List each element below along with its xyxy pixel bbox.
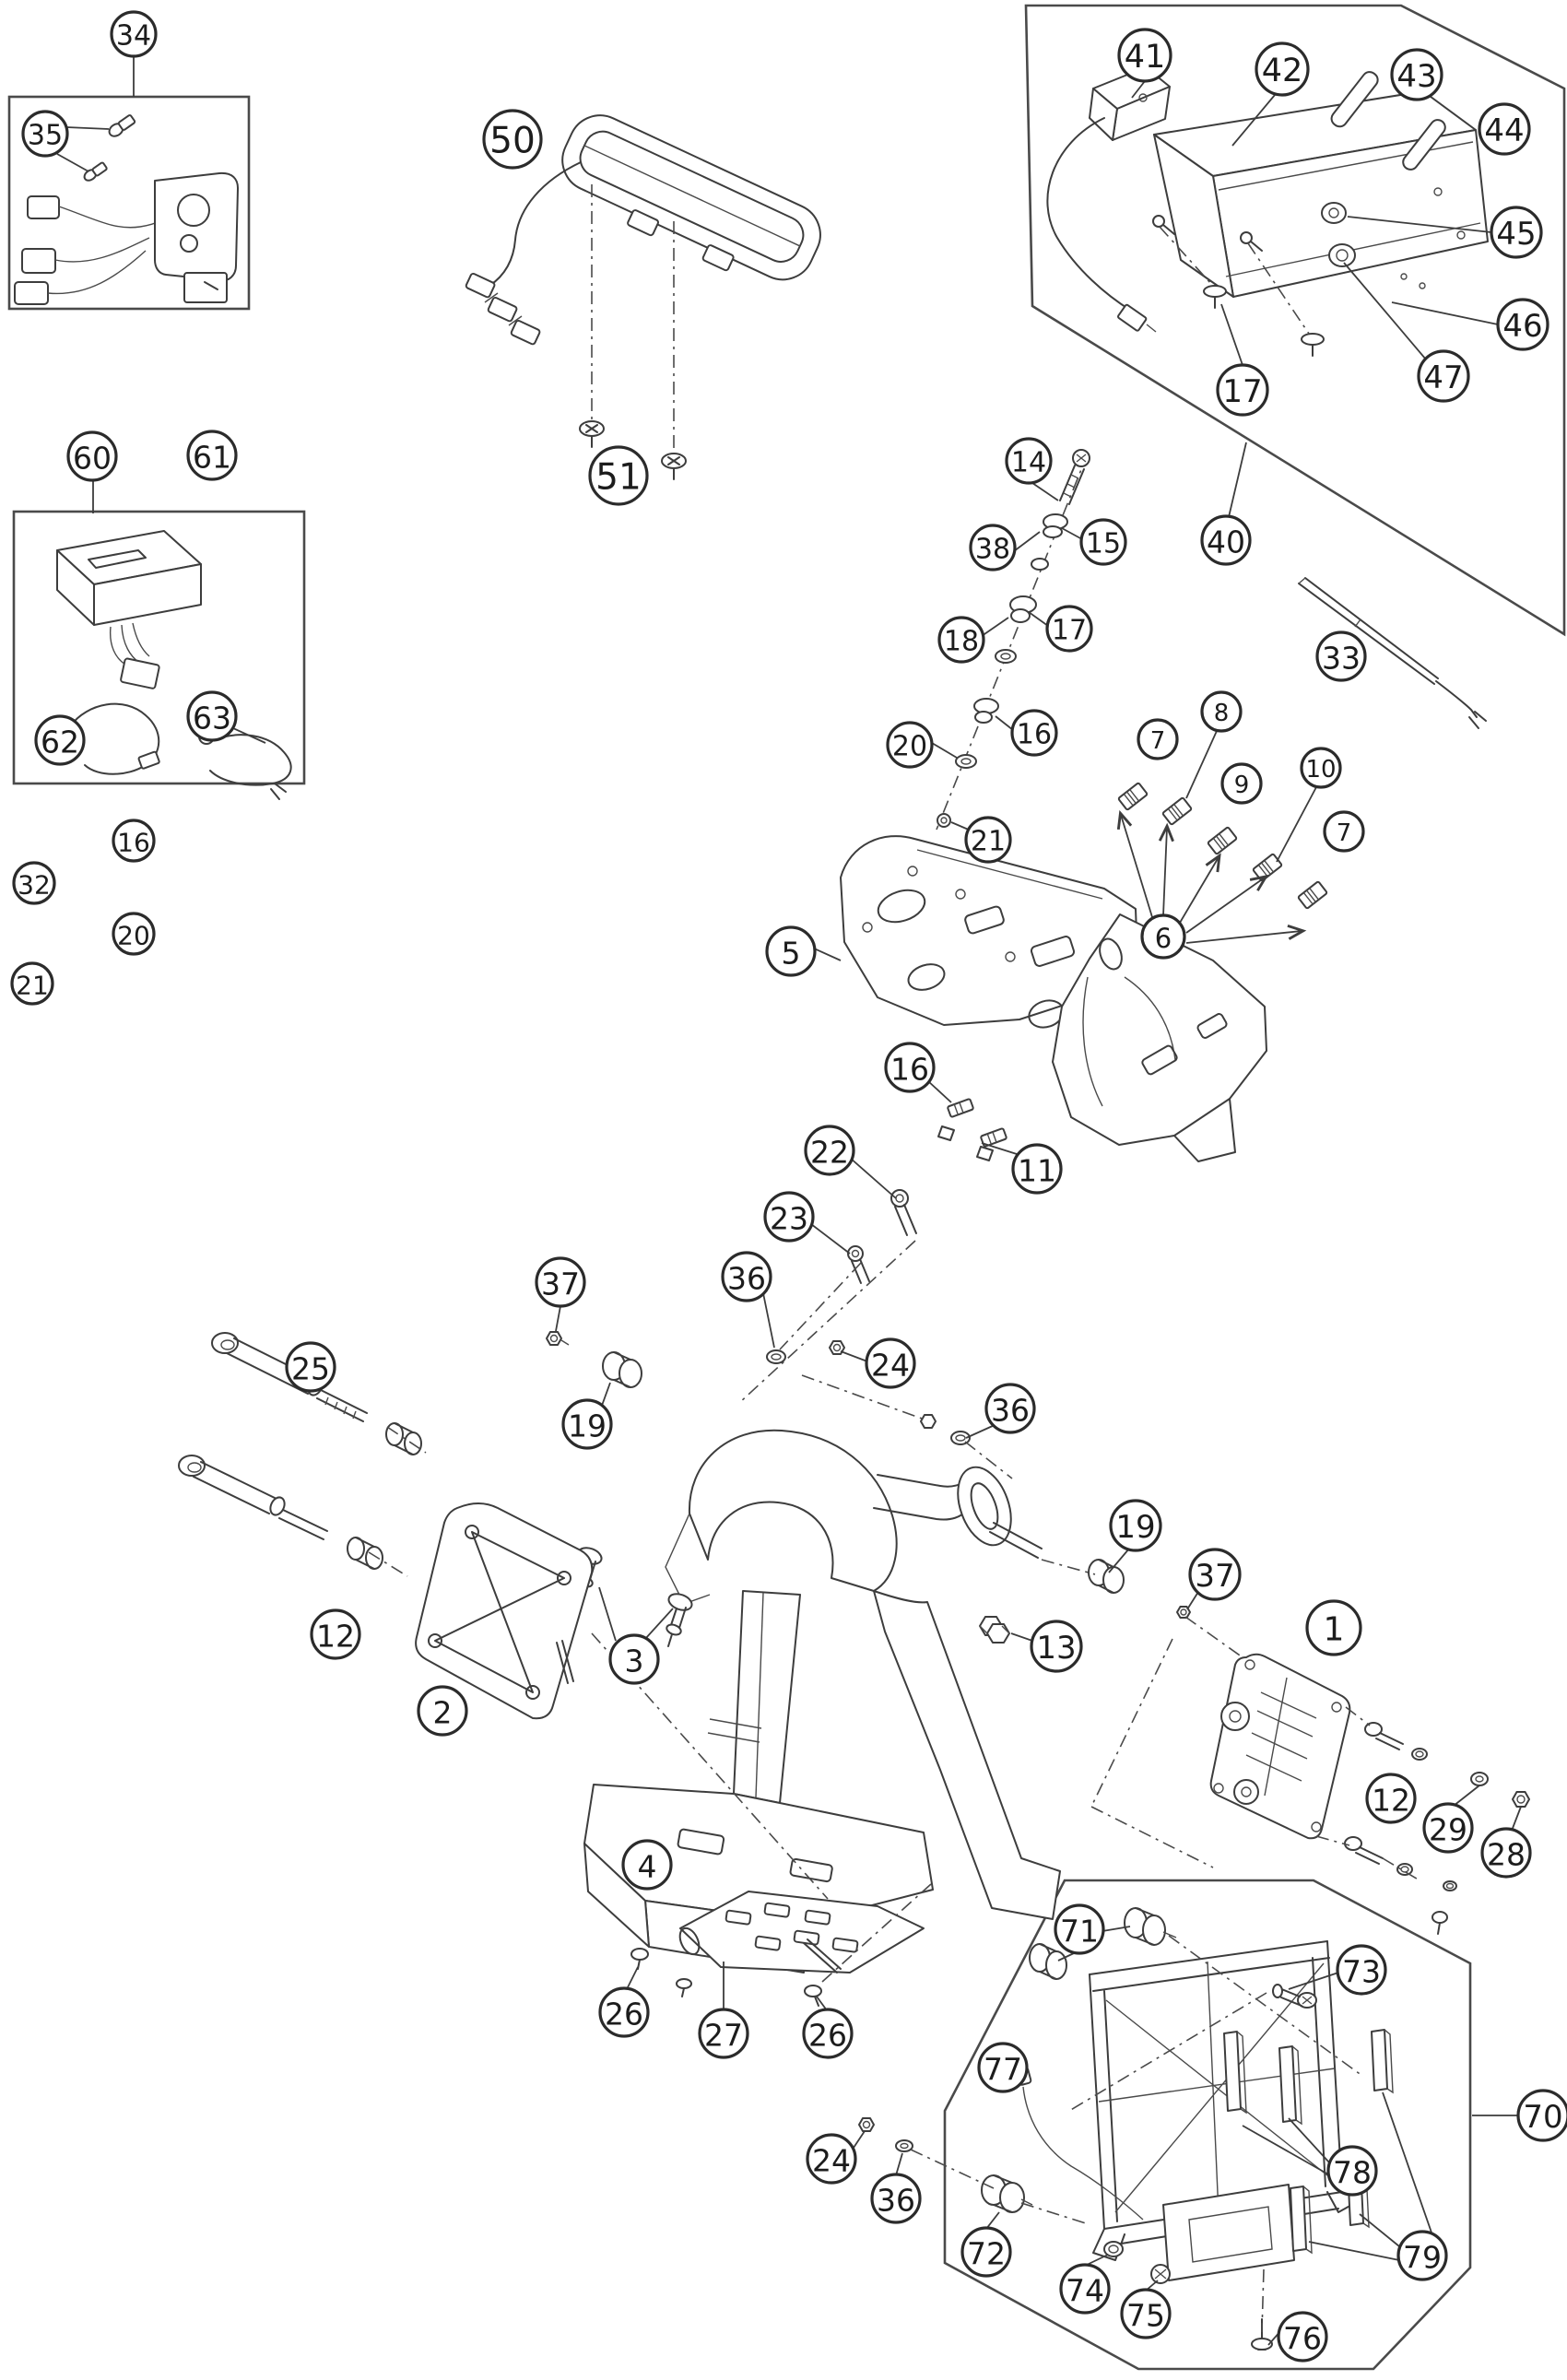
callout-77: 77: [979, 2044, 1027, 2091]
callout-number-19: 19: [568, 1408, 607, 1444]
callout-42: 42: [1256, 43, 1308, 95]
callout-76: 76: [1278, 2313, 1326, 2361]
callout-13: 13: [1031, 1621, 1081, 1671]
callout-number-43: 43: [1396, 58, 1436, 95]
callout-number-17: 17: [1052, 615, 1087, 647]
callout-number-62: 62: [41, 725, 79, 760]
damper-71a: [1125, 1908, 1176, 1945]
callout-number-12: 12: [316, 1619, 355, 1655]
callout-40: 40: [1202, 516, 1250, 564]
callout-21: 21: [966, 818, 1010, 862]
callout-number-78: 78: [1333, 2155, 1372, 2191]
callout-number-11: 11: [1018, 1153, 1056, 1189]
callout-number-26: 26: [808, 2018, 847, 2054]
callout-number-37: 37: [1195, 1558, 1234, 1595]
callout-number-16: 16: [1017, 719, 1052, 751]
part-condenser: [1047, 67, 1170, 332]
callout-number-72: 72: [967, 2236, 1006, 2272]
bushing-19a: [603, 1352, 642, 1387]
callout-21: 21: [12, 963, 53, 1004]
callout-number-5: 5: [782, 936, 801, 972]
callout-number-24: 24: [871, 1348, 910, 1384]
pads-78: [1224, 2030, 1393, 2124]
callout-number-4: 4: [638, 1849, 657, 1885]
callout-28: 28: [1482, 1829, 1530, 1877]
callout-number-2: 2: [433, 1695, 453, 1731]
callout-23: 23: [765, 1193, 813, 1241]
callout-78: 78: [1328, 2147, 1376, 2195]
nut-28: [1513, 1792, 1529, 1807]
callout-79: 79: [1398, 2232, 1446, 2280]
callout-number-42: 42: [1262, 53, 1303, 89]
callout-number-70: 70: [1523, 2099, 1562, 2136]
callout-60: 60: [68, 432, 116, 480]
callout-12: 12: [312, 1610, 359, 1658]
callout-number-74: 74: [1066, 2273, 1104, 2309]
callout-25: 25: [287, 1343, 335, 1391]
washer-36a: [767, 1350, 785, 1363]
callout-number-18: 18: [944, 626, 979, 658]
ecu-knob-45: [1322, 203, 1346, 223]
callout-number-44: 44: [1484, 112, 1524, 149]
callout-7: 7: [1325, 812, 1363, 851]
callout-number-17: 17: [1222, 373, 1262, 410]
callout-5: 5: [767, 927, 815, 975]
part-bushing-19b: [990, 1523, 1124, 1593]
part-nut-24b: [859, 2118, 874, 2131]
callout-number-26: 26: [605, 1997, 643, 2032]
callout-33: 33: [1317, 632, 1365, 680]
callout-16: 16: [886, 1043, 934, 1091]
part-main-bracket: [584, 1431, 1060, 1973]
callout-number-71: 71: [1060, 1914, 1099, 1950]
callout-34: 34: [112, 12, 156, 56]
callout-51: 51: [590, 447, 647, 504]
callout-9: 9: [1222, 764, 1261, 803]
callout-number-51: 51: [595, 457, 642, 499]
callout-19: 19: [563, 1400, 611, 1448]
part-small-fittings: [547, 1099, 1007, 1444]
callout-number-34: 34: [116, 20, 151, 53]
callout-number-63: 63: [193, 701, 231, 736]
callout-number-16: 16: [890, 1052, 929, 1088]
callout-36: 36: [872, 2174, 920, 2222]
part-washer-36c: [896, 2140, 913, 2151]
projection-lines: [369, 184, 1420, 2332]
grommet-17: [1010, 596, 1036, 622]
callout-26: 26: [804, 2009, 852, 2057]
callout-number-28: 28: [1487, 1837, 1526, 1873]
callout-46: 46: [1498, 300, 1548, 349]
callout-63: 63: [188, 692, 236, 740]
callout-number-12: 12: [1372, 1783, 1410, 1819]
callout-number-25: 25: [291, 1351, 330, 1387]
callout-20: 20: [888, 723, 932, 767]
callout-45: 45: [1491, 207, 1541, 257]
callout-17: 17: [1047, 607, 1091, 651]
callout-number-20: 20: [117, 921, 150, 951]
screw-14: [1060, 450, 1090, 504]
ecu-knob-46: [1329, 244, 1355, 266]
callout-number-22: 22: [810, 1135, 849, 1171]
grommet-16: [974, 699, 998, 723]
callout-number-27: 27: [704, 2018, 743, 2054]
callout-19: 19: [1111, 1501, 1161, 1550]
screw-26-right: [805, 1985, 821, 2006]
callout-number-77: 77: [984, 2052, 1022, 2088]
spacer-1: [386, 1423, 421, 1455]
callout-number-46: 46: [1502, 308, 1542, 345]
callout-number-16: 16: [117, 828, 150, 858]
callout-7: 7: [1138, 720, 1177, 759]
parts-diagram-canvas: 3435505160616263163220214142434445464717…: [0, 0, 1567, 2380]
callout-43: 43: [1392, 50, 1442, 100]
callout-number-7: 7: [1150, 727, 1166, 755]
callout-number-50: 50: [489, 121, 536, 162]
callout-1: 1: [1307, 1601, 1361, 1655]
callout-number-75: 75: [1126, 2298, 1165, 2334]
callout-number-37: 37: [541, 1267, 580, 1302]
screw-51-right: [662, 454, 686, 479]
callout-27: 27: [700, 2009, 748, 2057]
callout-72: 72: [962, 2228, 1010, 2276]
callout-24: 24: [807, 2135, 855, 2183]
callout-61: 61: [188, 431, 236, 479]
callout-number-14: 14: [1011, 447, 1046, 479]
washer-20: [956, 755, 976, 768]
callout-62: 62: [36, 716, 84, 764]
callout-number-8: 8: [1214, 700, 1230, 727]
callout-38: 38: [971, 525, 1015, 570]
callout-75: 75: [1122, 2290, 1170, 2338]
callout-12: 12: [1367, 1774, 1415, 1822]
callout-3: 3: [610, 1635, 658, 1683]
callout-number-47: 47: [1423, 359, 1463, 396]
screw-21: [937, 814, 950, 827]
callout-number-60: 60: [73, 441, 112, 477]
callout-70: 70: [1518, 2091, 1567, 2140]
callout-number-40: 40: [1207, 524, 1245, 560]
part-pins-3: [576, 1545, 694, 1646]
callout-number-73: 73: [1342, 1954, 1381, 1990]
callout-number-7: 7: [1337, 819, 1352, 847]
callout-number-35: 35: [28, 120, 63, 152]
callout-number-23: 23: [770, 1201, 808, 1237]
screw-75: [1151, 2265, 1170, 2283]
part-nut-13: [980, 1617, 1009, 1643]
callout-41: 41: [1119, 29, 1171, 81]
callout-number-45: 45: [1496, 216, 1536, 253]
callout-15: 15: [1081, 520, 1125, 564]
callout-11: 11: [1013, 1145, 1061, 1193]
screw-51-left: [580, 421, 604, 447]
callout-number-29: 29: [1429, 1812, 1467, 1848]
callouts: 3435505160616263163220214142434445464717…: [12, 12, 1567, 2361]
callout-number-79: 79: [1403, 2240, 1442, 2276]
diagram-svg: 3435505160616263163220214142434445464717…: [0, 0, 1567, 2380]
callout-number-15: 15: [1086, 528, 1121, 560]
callout-37: 37: [1190, 1549, 1240, 1599]
callout-number-76: 76: [1283, 2321, 1322, 2357]
callout-20: 20: [113, 913, 154, 954]
callout-number-3: 3: [625, 1644, 644, 1679]
callout-number-19: 19: [1115, 1509, 1155, 1546]
group-box-holder: [945, 1880, 1470, 2369]
callout-number-32: 32: [18, 870, 51, 901]
callout-number-33: 33: [1322, 641, 1361, 677]
callout-number-9: 9: [1234, 772, 1250, 799]
callout-17: 17: [1218, 365, 1267, 415]
cable-holder-77: [1016, 2068, 1143, 2220]
callout-35: 35: [23, 112, 67, 156]
callout-50: 50: [484, 111, 541, 168]
callout-number-21: 21: [16, 971, 49, 1001]
callout-8: 8: [1202, 692, 1241, 731]
callout-number-41: 41: [1125, 39, 1166, 76]
callout-37: 37: [536, 1258, 584, 1306]
callout-16: 16: [113, 820, 154, 861]
callout-32: 32: [14, 863, 54, 903]
callout-71: 71: [1055, 1905, 1103, 1953]
callout-number-1: 1: [1324, 1611, 1345, 1649]
callout-29: 29: [1424, 1804, 1472, 1852]
callout-number-36: 36: [727, 1261, 766, 1297]
callout-4: 4: [623, 1841, 671, 1889]
callout-36: 36: [723, 1253, 771, 1301]
callout-10: 10: [1302, 748, 1340, 787]
callout-number-10: 10: [1305, 756, 1336, 784]
callout-number-21: 21: [971, 826, 1006, 858]
callout-16: 16: [1012, 711, 1056, 755]
washer-29: [1471, 1773, 1488, 1785]
nut-36b-set: [921, 1415, 970, 1444]
callout-number-36: 36: [991, 1393, 1030, 1429]
callout-18: 18: [939, 618, 984, 662]
part-flasher-unit: [57, 531, 201, 689]
callout-74: 74: [1061, 2265, 1109, 2313]
callout-26: 26: [600, 1988, 648, 2036]
screw-26-left: [631, 1949, 648, 1969]
callout-22: 22: [806, 1126, 854, 1174]
callout-24: 24: [866, 1339, 914, 1387]
callout-number-38: 38: [975, 534, 1010, 566]
callout-number-36: 36: [877, 2183, 915, 2219]
part-plate-1: [1211, 1655, 1350, 1839]
callout-73: 73: [1337, 1946, 1385, 1994]
callout-14: 14: [1007, 439, 1051, 483]
washer-38: [1031, 559, 1048, 570]
callout-number-6: 6: [1155, 923, 1172, 954]
spacer-2: [348, 1538, 383, 1569]
damper-72: [982, 2175, 1032, 2212]
callout-number-13: 13: [1036, 1630, 1076, 1667]
callout-47: 47: [1419, 351, 1468, 401]
callout-number-20: 20: [892, 731, 927, 763]
callout-2: 2: [418, 1687, 466, 1735]
callout-6: 6: [1142, 915, 1184, 958]
callout-number-61: 61: [193, 440, 231, 476]
damper-71b: [1030, 1944, 1066, 1979]
callout-44: 44: [1479, 104, 1529, 154]
ring-18: [996, 650, 1016, 663]
nut-37a: [547, 1332, 569, 1345]
callout-number-24: 24: [812, 2143, 851, 2179]
callout-36: 36: [986, 1384, 1034, 1432]
